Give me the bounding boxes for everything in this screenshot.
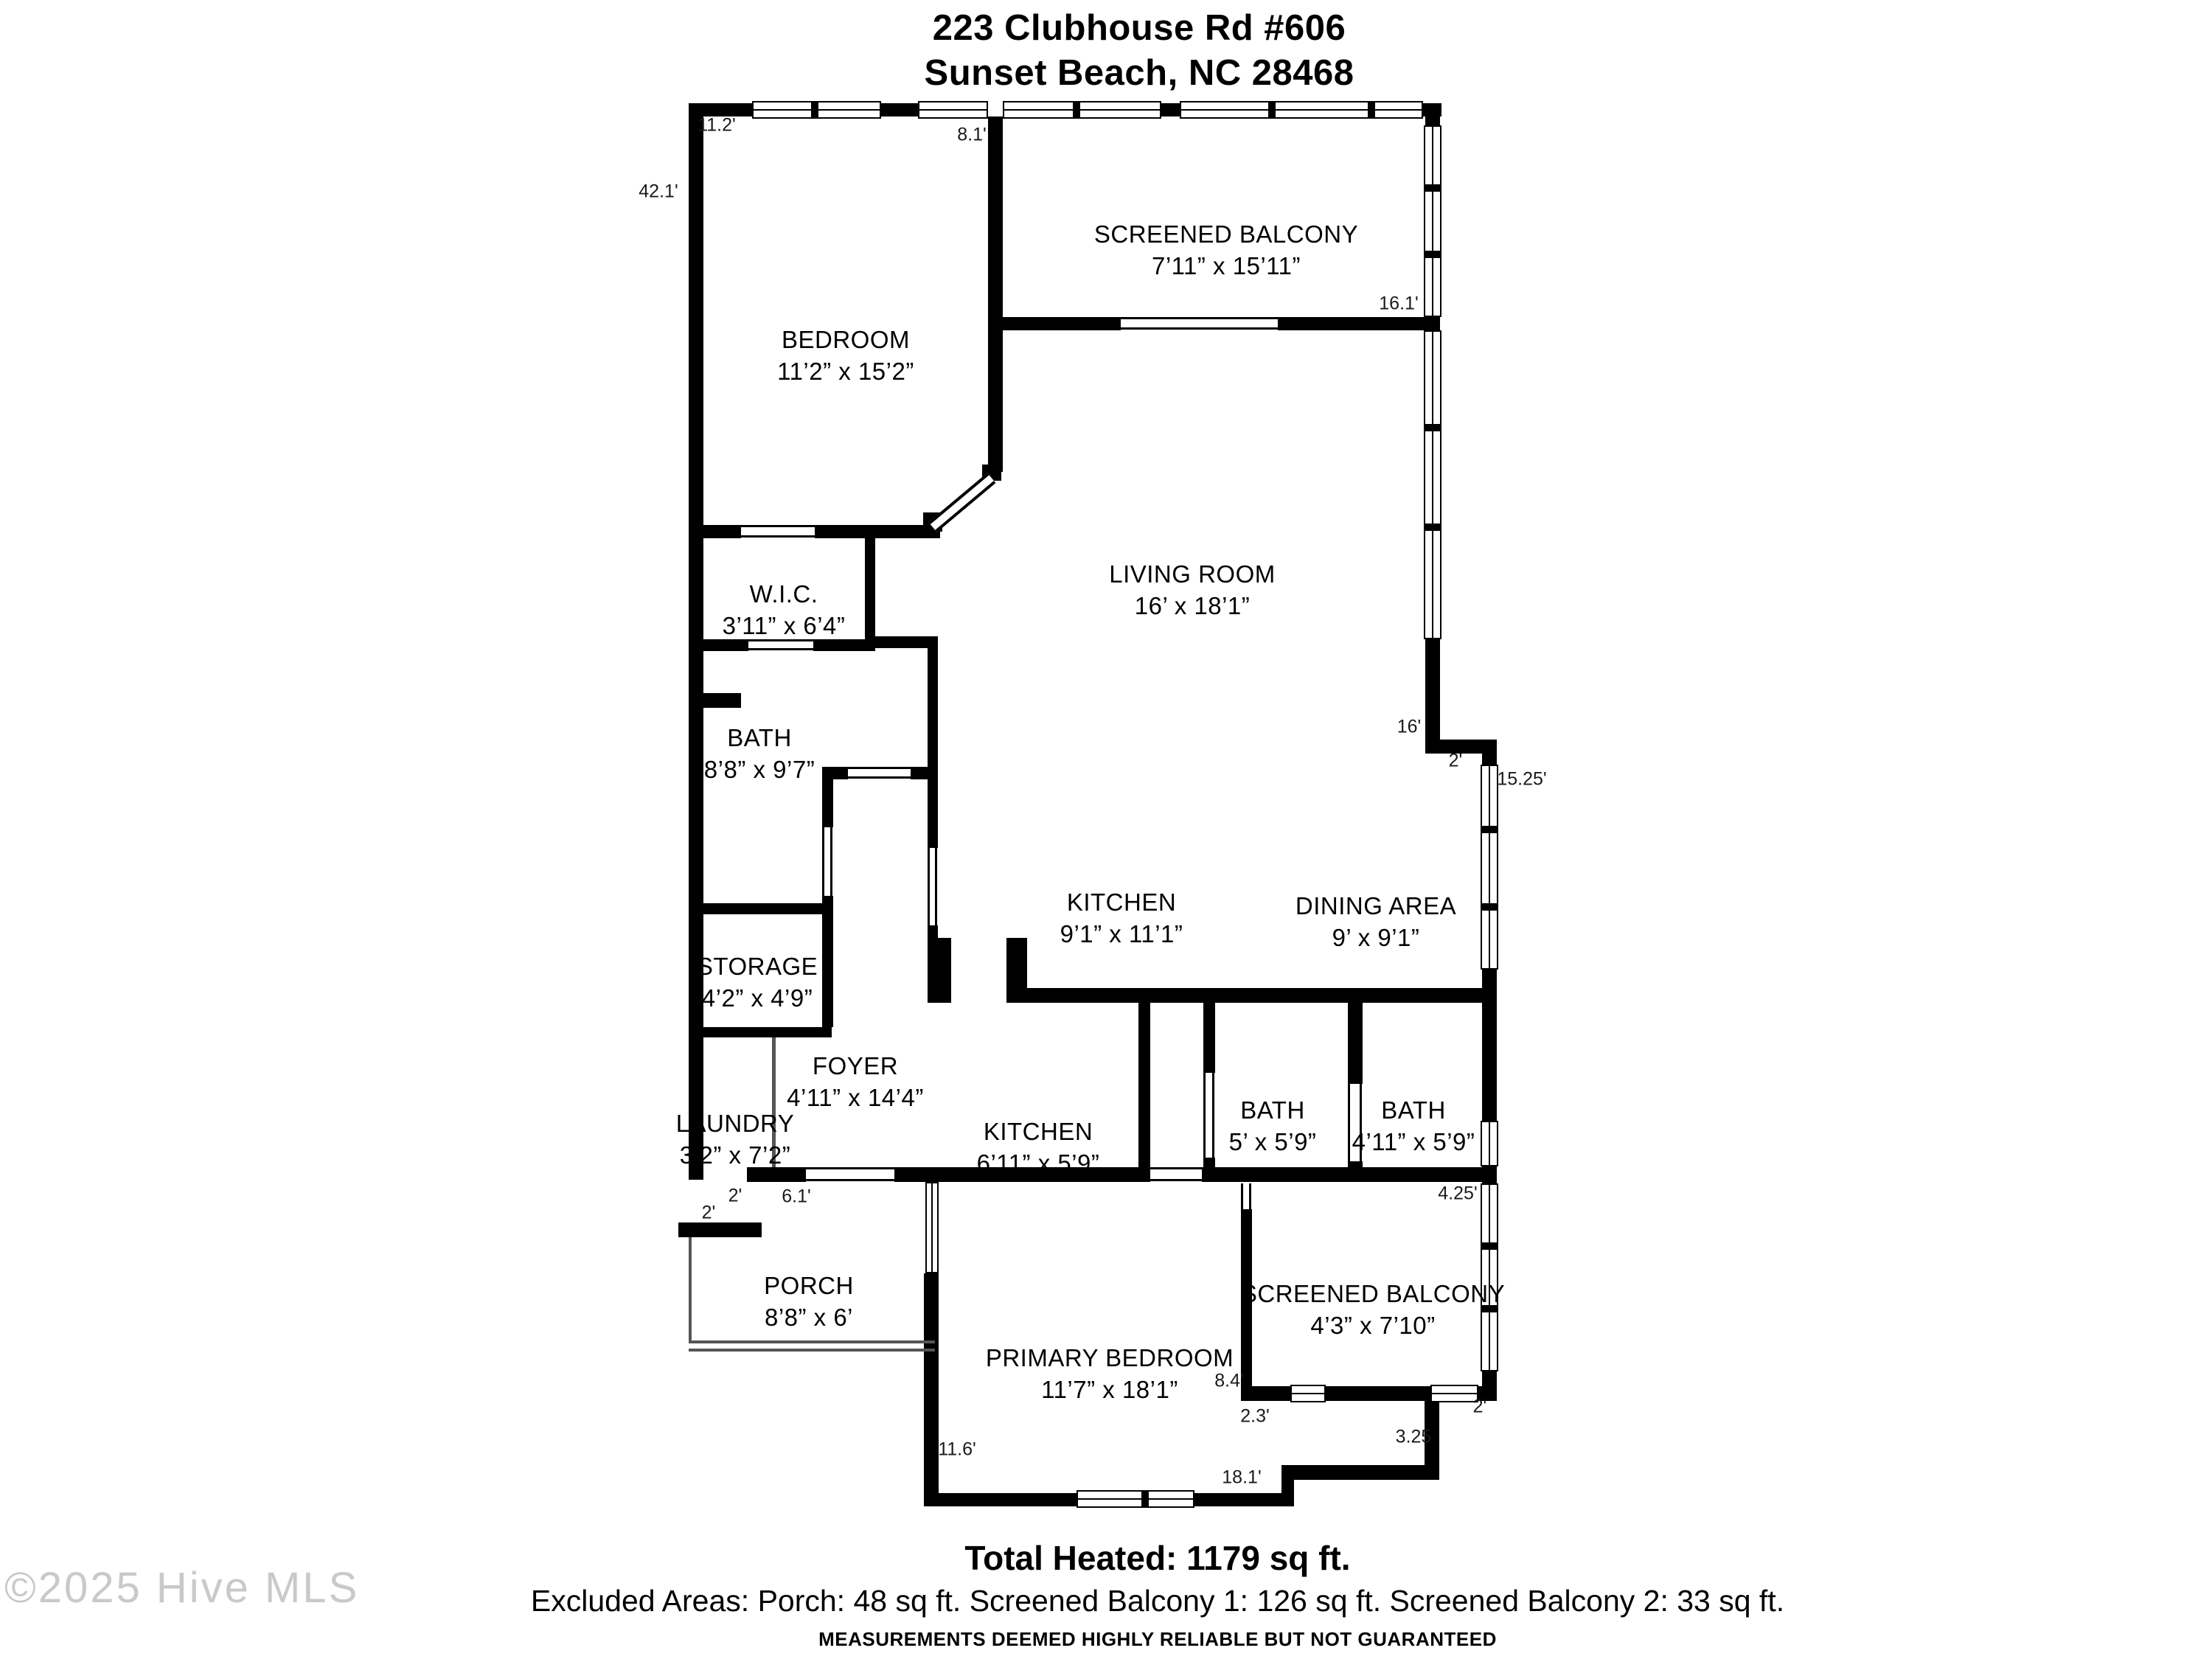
wall-segment	[822, 896, 833, 1027]
room-dimensions: 4’11” x 14’4”	[787, 1082, 924, 1114]
dimension-balcony2-step-height: 3.25	[1396, 1427, 1432, 1448]
room-name: DINING AREA	[1295, 891, 1456, 922]
room-label-storage: STORAGE4’2” x 4’9”	[697, 951, 818, 1015]
window-mullion	[1481, 1242, 1498, 1250]
window-pane-line	[1004, 109, 1160, 111]
door-opening-line	[1203, 1073, 1206, 1158]
door-opening-line	[1150, 1179, 1202, 1181]
window	[1481, 1183, 1498, 1371]
room-name: W.I.C.	[723, 579, 846, 611]
window	[1424, 330, 1441, 639]
door-opening-line	[748, 648, 813, 650]
room-label-wic: W.I.C.3’11” x 6’4”	[723, 579, 846, 642]
wall-segment	[689, 525, 741, 538]
room-dimensions: 8’8” x 6’	[764, 1302, 854, 1334]
wall-segment	[1348, 1161, 1363, 1172]
door-opening-line	[935, 848, 937, 925]
window-mullion	[1424, 424, 1441, 431]
room-label-bath-main: BATH8’8” x 9’7”	[704, 723, 815, 786]
room-name: LIVING ROOM	[1109, 559, 1276, 591]
room-dimensions: 3’11” x 6’4”	[723, 611, 846, 642]
room-dimensions: 11’7” x 18’1”	[986, 1374, 1234, 1406]
wall-segment	[822, 767, 833, 827]
dimension-left-side-height: 42.1'	[639, 181, 678, 203]
door-opening-line	[1241, 1183, 1243, 1209]
window	[1481, 1121, 1498, 1166]
wall-segment	[911, 767, 938, 779]
room-name: BATH	[1229, 1095, 1317, 1127]
wall-segment	[938, 938, 951, 988]
room-dimensions: 4’3” x 7’10”	[1241, 1310, 1505, 1342]
room-name: LAUNDRY	[676, 1108, 795, 1140]
room-label-dining-area: DINING AREA9’ x 9’1”	[1295, 891, 1456, 954]
door-opening-line	[1249, 1183, 1251, 1209]
dimension-balcony2-door-width: 2'	[1473, 1397, 1487, 1418]
room-name: KITCHEN	[1060, 887, 1183, 919]
porch-screen-line	[689, 1237, 692, 1340]
wall-segment	[865, 538, 875, 651]
room-label-primary-bedroom: PRIMARY BEDROOM11’7” x 18’1”	[986, 1343, 1234, 1406]
dimension-bedroom-top-width: 11.2'	[698, 115, 736, 136]
window-mullion	[1481, 826, 1498, 833]
room-label-porch: PORCH8’8” x 6’	[764, 1270, 854, 1334]
wall-segment	[988, 116, 1003, 317]
room-name: KITCHEN	[977, 1116, 1100, 1148]
room-name: FOYER	[787, 1051, 924, 1082]
door-opening-line	[806, 1179, 894, 1181]
mls-watermark: ©2025 Hive MLS	[4, 1563, 359, 1613]
wall-segment	[1294, 1465, 1439, 1480]
window	[918, 101, 988, 119]
window-mullion	[1424, 251, 1441, 258]
room-label-foyer: FOYER4’11” x 14’4”	[787, 1051, 924, 1114]
disclaimer-text: MEASUREMENTS DEEMED HIGHLY RELIABLE BUT …	[818, 1628, 1497, 1651]
room-dimensions: 9’ x 9’1”	[1295, 922, 1456, 954]
wall-segment	[815, 525, 940, 538]
room-name: PRIMARY BEDROOM	[986, 1343, 1234, 1374]
room-label-kitchen-main: KITCHEN9’1” x 11’1”	[1060, 887, 1183, 950]
excluded-areas-text: Excluded Areas: Porch: 48 sq ft. Screene…	[531, 1584, 1784, 1618]
window	[1290, 1385, 1326, 1402]
window	[1424, 125, 1441, 317]
dimension-notch-width: 2'	[728, 1186, 742, 1207]
door-opening-line	[1150, 1167, 1202, 1169]
window	[1430, 1385, 1478, 1402]
window-pane-line	[1432, 332, 1433, 638]
room-label-bath-3: BATH4’11” x 5’9”	[1352, 1095, 1475, 1158]
floor-plan-canvas: BEDROOM11’2” x 15’2”SCREENED BALCONY7’11…	[0, 0, 2212, 1659]
wall-segment	[928, 636, 938, 848]
room-dimensions: 7’11” x 15’11”	[1094, 251, 1358, 282]
room-dimensions: 8’8” x 9’7”	[704, 754, 815, 786]
wall-segment	[1278, 317, 1425, 330]
porch-screen-line	[689, 1340, 935, 1343]
wall-segment	[988, 330, 1003, 472]
window-mullion	[1368, 101, 1375, 119]
room-label-bedroom: BEDROOM11’2” x 15’2”	[777, 324, 914, 388]
window-mullion	[1141, 1490, 1149, 1508]
dimension-porch-top-width: 6.1'	[782, 1186, 811, 1208]
wall-segment	[988, 317, 1121, 330]
room-name: BEDROOM	[777, 324, 914, 356]
window-pane-line	[919, 109, 987, 111]
porch-screen-line	[689, 1349, 935, 1352]
room-label-living-room: LIVING ROOM16’ x 18’1”	[1109, 559, 1276, 622]
window-mullion	[1481, 903, 1498, 911]
window-pane-line	[1078, 1498, 1193, 1500]
window-pane-line	[1432, 127, 1433, 316]
room-dimensions: 4’2” x 4’9”	[697, 983, 818, 1015]
dimension-balcony2-left-height: 8.4'	[1214, 1371, 1244, 1392]
wall-segment	[689, 1027, 832, 1037]
window	[925, 1182, 939, 1273]
door-opening-line	[1348, 1084, 1350, 1161]
door-opening-line	[1121, 317, 1278, 319]
door-opening-line	[928, 848, 930, 925]
room-dimensions: 4’11” x 5’9”	[1352, 1127, 1475, 1158]
door-opening-line	[848, 776, 911, 779]
room-dimensions: 6’11” x 5’9”	[977, 1148, 1100, 1180]
room-dimensions: 5’ x 5’9”	[1229, 1127, 1317, 1158]
window-pane-line	[1489, 766, 1490, 968]
wall-segment	[1348, 1003, 1363, 1084]
wall-segment	[1423, 103, 1441, 116]
window-mullion	[1424, 524, 1441, 531]
room-dimensions: 9’1” x 11’1”	[1060, 919, 1183, 950]
wall-segment	[875, 636, 938, 648]
dimension-primary-bottom-width: 18.1'	[1222, 1467, 1261, 1489]
room-label-screened-balcony-1: SCREENED BALCONY7’11” x 15’11”	[1094, 219, 1358, 282]
door-opening-line	[848, 767, 911, 769]
door-opening-line	[741, 535, 815, 538]
wall-segment	[1138, 1003, 1150, 1172]
window	[1481, 765, 1498, 970]
dimension-living-right-height: 16'	[1397, 717, 1422, 738]
wall-segment	[1161, 103, 1180, 116]
door-opening-line	[741, 525, 815, 527]
dimension-balcony2-step-width: 2.3'	[1240, 1406, 1270, 1427]
window	[1180, 101, 1423, 119]
dimension-notch-height: 2'	[702, 1203, 716, 1224]
window	[1003, 101, 1161, 119]
dimension-dining-right-height: 15.25'	[1497, 769, 1546, 790]
wall-segment	[1203, 1003, 1215, 1073]
room-label-laundry: LAUNDRY3’2” x 7’2”	[676, 1108, 795, 1172]
window-pane-line	[1181, 109, 1422, 111]
room-label-kitchen-2: KITCHEN6’11” x 5’9”	[977, 1116, 1100, 1180]
wall-segment	[689, 693, 741, 708]
window-pane-line	[931, 1183, 933, 1272]
wall-segment	[1203, 1158, 1215, 1172]
room-name: SCREENED BALCONY	[1241, 1279, 1505, 1310]
wall-segment	[928, 988, 951, 1003]
door-opening-line	[1212, 1073, 1214, 1158]
window-pane-line	[1489, 1185, 1490, 1370]
window	[1077, 1490, 1194, 1508]
room-label-screened-balcony-2: SCREENED BALCONY4’3” x 7’10”	[1241, 1279, 1505, 1342]
dimension-balcony1-left-height: 8.1'	[957, 125, 987, 146]
door-opening-line	[822, 827, 824, 896]
window-mullion	[1268, 101, 1276, 119]
wall-segment	[1006, 938, 1027, 988]
room-name: BATH	[1352, 1095, 1475, 1127]
total-heated-text: Total Heated: 1179 sq ft.	[964, 1538, 1350, 1578]
wall-segment	[881, 103, 918, 116]
room-dimensions: 16’ x 18’1”	[1109, 591, 1276, 622]
wall-segment	[678, 1222, 762, 1237]
dimension-balcony1-right-height: 16.1'	[1379, 293, 1418, 315]
window-mullion	[1073, 101, 1080, 119]
room-name: PORCH	[764, 1270, 854, 1302]
window-mullion	[1424, 184, 1441, 192]
room-name: SCREENED BALCONY	[1094, 219, 1358, 251]
room-name: BATH	[704, 723, 815, 754]
window-mullion	[811, 101, 818, 119]
angled-door-opening	[928, 473, 995, 532]
room-name: STORAGE	[697, 951, 818, 983]
wall-segment	[689, 903, 822, 914]
room-dimensions: 11’2” x 15’2”	[777, 356, 914, 388]
door-opening-line	[830, 827, 832, 896]
window-pane-line	[1432, 1393, 1477, 1394]
dimension-balcony2-right-height: 4.25'	[1438, 1183, 1477, 1205]
door-opening-line	[1121, 327, 1278, 330]
window-pane-line	[1489, 1122, 1490, 1165]
room-label-bath-2: BATH5’ x 5’9”	[1229, 1095, 1317, 1158]
window-pane-line	[1292, 1393, 1324, 1394]
wall-segment	[924, 1273, 939, 1506]
room-dimensions: 3’2” x 7’2”	[676, 1140, 795, 1172]
wall-segment	[1006, 988, 1497, 1003]
dimension-right-step-width: 2'	[1449, 751, 1463, 772]
door-opening-line	[806, 1167, 894, 1169]
dimension-primary-left-height: 11.6'	[938, 1439, 976, 1461]
